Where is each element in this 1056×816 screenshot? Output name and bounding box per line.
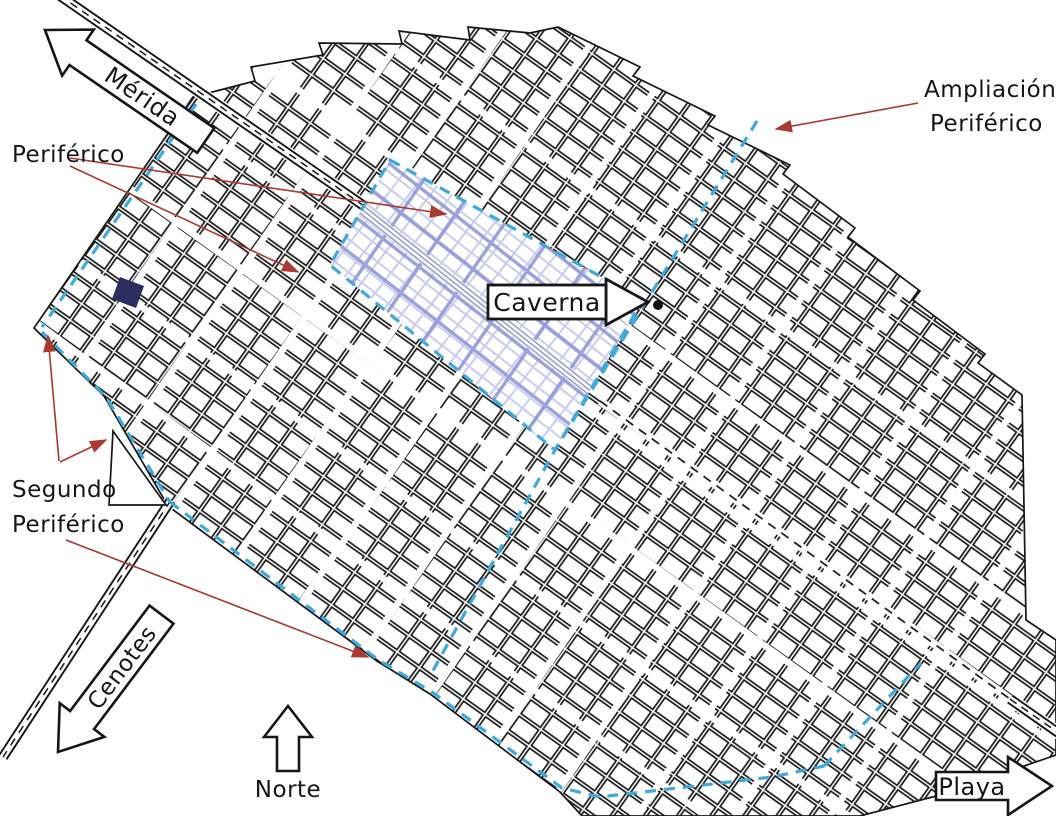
norte-label: Norte <box>255 777 321 803</box>
caverna-label: Caverna <box>493 288 600 317</box>
segundo-periferico-label-line2: Periférico <box>12 512 125 538</box>
segundo-periferico-label-line1: Segundo <box>12 477 117 503</box>
city-map: Periférico Segundo Periférico Ampliación… <box>0 0 1056 816</box>
periferico-label: Periférico <box>12 142 125 168</box>
norte-arrow: Norte <box>255 706 321 803</box>
ampliacion-pointer <box>776 103 918 129</box>
ampliacion-periferico-label-line1: Ampliación <box>924 77 1056 103</box>
playa-arrow-label: Playa <box>938 773 1005 801</box>
cenotes-arrow-label: Cenotes <box>83 621 162 715</box>
cave-dot-marker <box>653 300 663 310</box>
ampliacion-periferico-label-line2: Periférico <box>930 111 1043 137</box>
segundo-pointer-1 <box>48 336 59 461</box>
segundo-pointer-2 <box>60 440 106 462</box>
